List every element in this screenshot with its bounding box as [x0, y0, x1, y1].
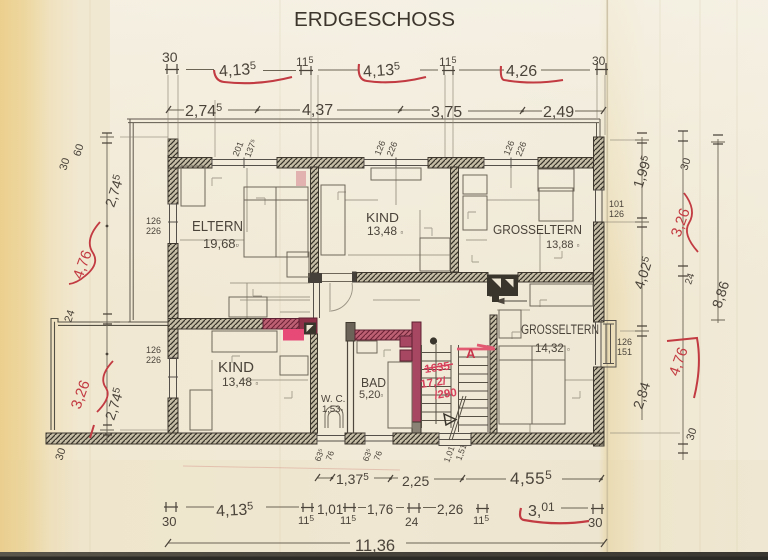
svg-text:ELTERN: ELTERN	[192, 218, 243, 235]
svg-text:101: 101	[609, 199, 624, 209]
svg-text:30: 30	[162, 49, 178, 65]
svg-text:KIND: KIND	[366, 210, 399, 225]
svg-text:GROSSELTERN: GROSSELTERN	[493, 222, 582, 237]
svg-text:1,76: 1,76	[367, 502, 393, 517]
svg-text:GROSSELTERN: GROSSELTERN	[521, 322, 599, 337]
svg-text:226: 226	[146, 226, 161, 236]
svg-text:1,53▫: 1,53▫	[322, 404, 343, 415]
svg-text:2,25: 2,25	[402, 473, 429, 489]
svg-text:13,48 ▫: 13,48 ▫	[367, 224, 403, 238]
svg-text:4,37: 4,37	[302, 102, 333, 119]
svg-text:5,20▫: 5,20▫	[359, 389, 383, 401]
svg-text:30: 30	[162, 514, 176, 529]
svg-text:A: A	[466, 346, 476, 361]
svg-text:30: 30	[592, 54, 606, 68]
svg-text:ERDGESCHOSS: ERDGESCHOSS	[294, 9, 455, 31]
svg-text:11,36: 11,36	[355, 537, 395, 555]
svg-text:126: 126	[617, 337, 632, 347]
svg-text:4,26: 4,26	[506, 63, 537, 80]
svg-text:13,48 ▫: 13,48 ▫	[222, 375, 258, 389]
svg-text:126: 126	[146, 216, 161, 226]
svg-text:24: 24	[405, 515, 419, 529]
svg-text:30: 30	[588, 515, 602, 530]
svg-text:13,88 ▫: 13,88 ▫	[546, 239, 580, 251]
svg-text:14,32 ▫: 14,32 ▫	[535, 343, 570, 355]
svg-text:151: 151	[617, 347, 632, 357]
svg-text:126: 126	[146, 345, 161, 355]
svg-text:2,49: 2,49	[543, 104, 574, 121]
svg-text:19,68▫: 19,68▫	[203, 236, 239, 251]
svg-text:126: 126	[609, 209, 624, 219]
svg-text:KIND: KIND	[218, 359, 254, 376]
svg-text:3,75: 3,75	[431, 104, 462, 121]
svg-text:BAD: BAD	[361, 375, 386, 390]
svg-text:2,26: 2,26	[437, 502, 463, 517]
svg-text:226: 226	[146, 355, 161, 365]
